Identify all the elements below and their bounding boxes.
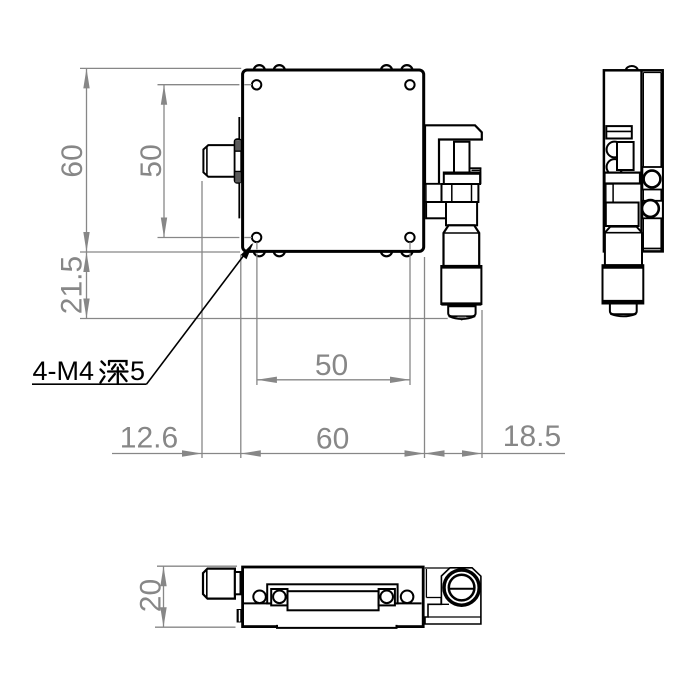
- svg-text:50: 50: [135, 144, 168, 177]
- svg-text:18.5: 18.5: [503, 420, 561, 453]
- svg-text:50: 50: [315, 349, 348, 382]
- svg-text:60: 60: [316, 423, 349, 456]
- svg-text:12.6: 12.6: [120, 422, 178, 455]
- svg-text:5: 5: [130, 356, 145, 386]
- svg-text:60: 60: [56, 144, 89, 177]
- svg-text:20: 20: [135, 579, 168, 612]
- svg-text:21.5: 21.5: [56, 256, 89, 314]
- svg-text:4-M4: 4-M4: [33, 356, 95, 386]
